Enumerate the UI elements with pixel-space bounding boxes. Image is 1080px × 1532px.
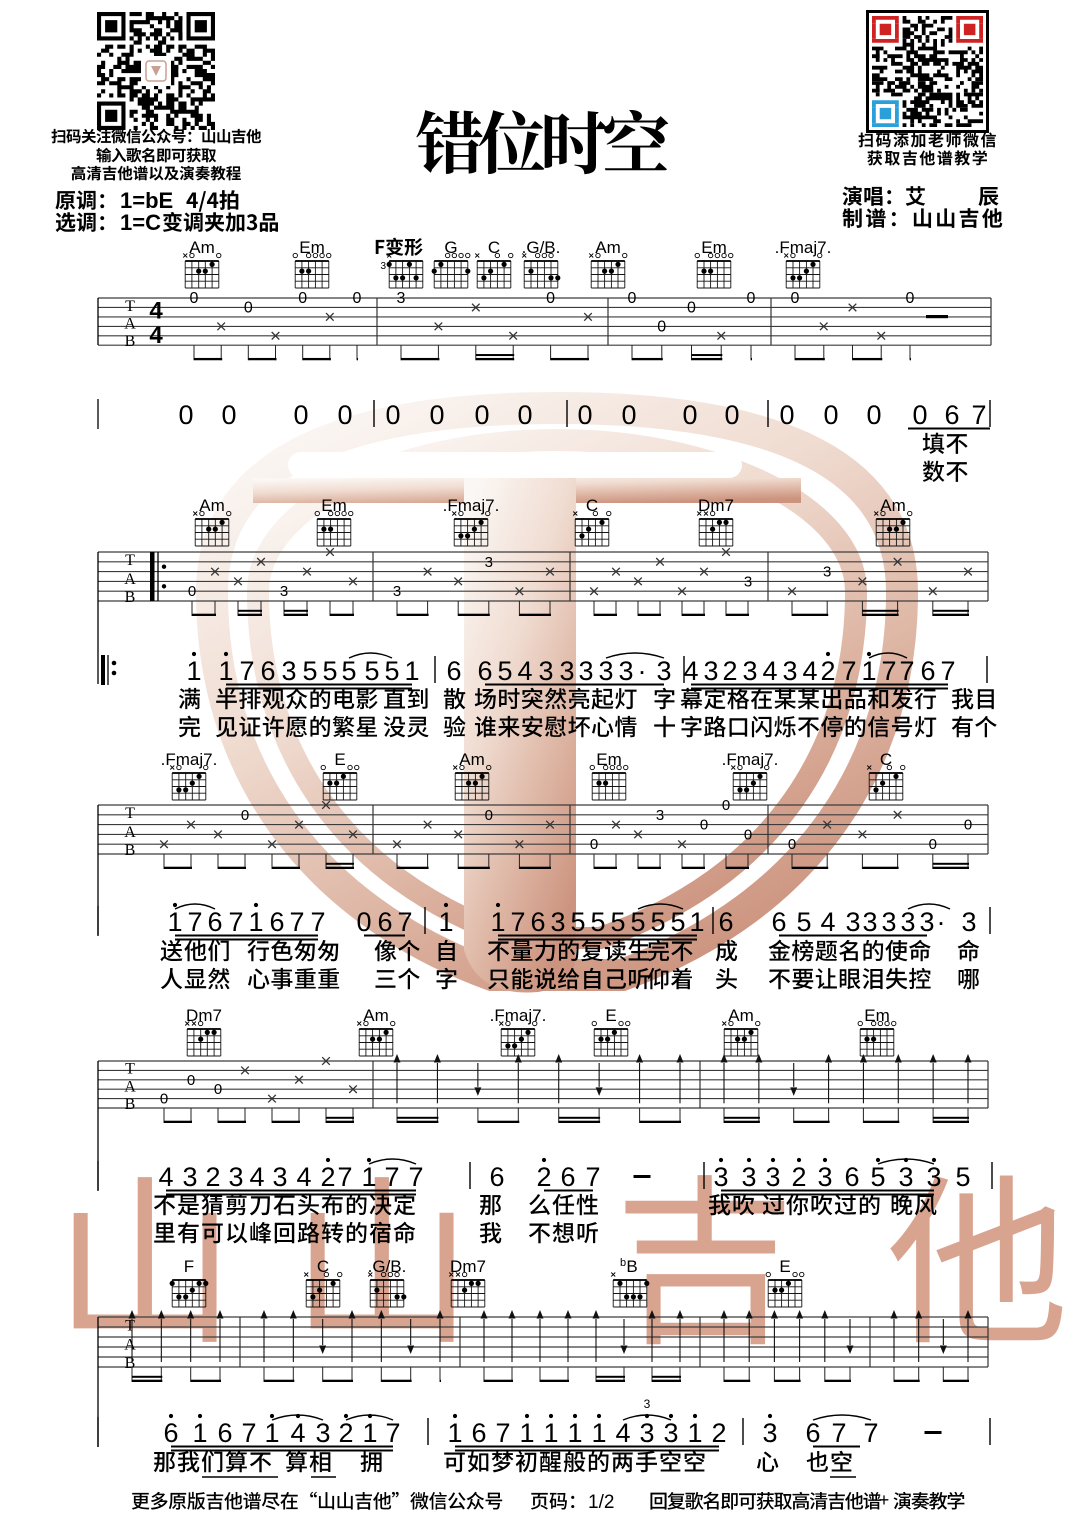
svg-text:3: 3 bbox=[485, 554, 493, 571]
svg-text:A: A bbox=[124, 824, 136, 841]
svg-text:B: B bbox=[125, 1096, 136, 1113]
svg-text:.Fmaj7.: .Fmaj7. bbox=[161, 750, 218, 769]
svg-text:T: T bbox=[125, 298, 135, 315]
svg-text:3: 3 bbox=[823, 564, 831, 581]
svg-text:+: + bbox=[879, 1490, 890, 1510]
svg-text:Am: Am bbox=[189, 238, 215, 257]
svg-text:0: 0 bbox=[628, 290, 637, 307]
svg-text:3: 3 bbox=[644, 1397, 651, 1411]
svg-text:.Fmaj7.: .Fmaj7. bbox=[490, 1006, 547, 1025]
svg-text:T: T bbox=[125, 1061, 135, 1078]
svg-text:4: 4 bbox=[149, 322, 163, 349]
svg-text:b: b bbox=[620, 1257, 626, 1269]
svg-text:3: 3 bbox=[280, 583, 288, 600]
svg-text:.G/B.: .G/B. bbox=[368, 1257, 407, 1276]
svg-text:0: 0 bbox=[546, 290, 555, 307]
svg-text:1=C: 1=C bbox=[120, 210, 161, 235]
svg-text:B: B bbox=[125, 333, 136, 350]
svg-text:C: C bbox=[586, 496, 598, 515]
svg-text:T: T bbox=[125, 1318, 135, 1335]
svg-text:43234342717762673332365335: 43234342717762673332365335 bbox=[158, 1162, 970, 1192]
svg-text:0: 0 bbox=[906, 290, 915, 307]
svg-text:0: 0 bbox=[485, 807, 493, 824]
svg-text:Am: Am bbox=[880, 496, 906, 515]
svg-text:0: 0 bbox=[788, 836, 796, 853]
svg-text:.G/B.: .G/B. bbox=[522, 238, 561, 257]
svg-text:A: A bbox=[124, 571, 136, 588]
svg-text:E: E bbox=[779, 1257, 790, 1276]
svg-text:4: 4 bbox=[149, 297, 163, 324]
svg-text:61671432171671111433123677: 61671432171671111433123677 bbox=[163, 1418, 878, 1448]
svg-text:3: 3 bbox=[397, 290, 406, 307]
svg-text:C: C bbox=[880, 750, 892, 769]
svg-text:.Fmaj7.: .Fmaj7. bbox=[722, 750, 779, 769]
svg-text:Am: Am bbox=[199, 496, 225, 515]
svg-text:3: 3 bbox=[656, 807, 664, 824]
svg-text:E: E bbox=[605, 1006, 616, 1025]
svg-text:176716770671176355555516654333: 17671677067117635555551665433333·3 bbox=[167, 907, 976, 937]
svg-text:Am: Am bbox=[363, 1006, 389, 1025]
svg-text:C: C bbox=[488, 238, 500, 257]
svg-text:0: 0 bbox=[190, 290, 199, 307]
svg-text:0: 0 bbox=[929, 836, 937, 853]
svg-text:Em: Em bbox=[701, 238, 727, 257]
svg-text:B: B bbox=[125, 589, 136, 606]
svg-text:T: T bbox=[125, 552, 135, 569]
svg-text:0: 0 bbox=[298, 290, 307, 307]
svg-text:0: 0 bbox=[214, 1081, 222, 1098]
svg-text:A: A bbox=[124, 1337, 136, 1354]
svg-text:0: 0 bbox=[244, 299, 253, 316]
svg-text:A: A bbox=[124, 1079, 136, 1096]
svg-text:0: 0 bbox=[700, 817, 708, 834]
svg-text:0: 0 bbox=[353, 290, 362, 307]
svg-text:0: 0 bbox=[188, 583, 196, 600]
svg-text:Am: Am bbox=[728, 1006, 754, 1025]
svg-text:Dm7: Dm7 bbox=[450, 1257, 486, 1276]
svg-text:3: 3 bbox=[393, 583, 401, 600]
svg-text:0: 0 bbox=[747, 290, 756, 307]
svg-text:C: C bbox=[317, 1257, 329, 1276]
svg-text:Em: Em bbox=[299, 238, 325, 257]
svg-text:0: 0 bbox=[657, 318, 666, 335]
svg-text:Em: Em bbox=[596, 750, 622, 769]
svg-text:Dm7: Dm7 bbox=[698, 496, 734, 515]
svg-text:0: 0 bbox=[744, 826, 752, 843]
svg-text:A: A bbox=[124, 316, 136, 333]
svg-text:0: 0 bbox=[590, 836, 598, 853]
svg-text:T: T bbox=[125, 805, 135, 822]
svg-text:F: F bbox=[184, 1257, 194, 1276]
svg-text:Dm7: Dm7 bbox=[186, 1006, 222, 1025]
svg-text:E: E bbox=[334, 750, 345, 769]
svg-text:G: G bbox=[444, 238, 457, 257]
svg-text:0: 0 bbox=[241, 807, 249, 824]
svg-text:Em: Em bbox=[321, 496, 347, 515]
svg-text:3: 3 bbox=[744, 573, 752, 590]
svg-text:Em: Em bbox=[864, 1006, 890, 1025]
svg-text:B: B bbox=[125, 842, 136, 859]
svg-text:Am: Am bbox=[459, 750, 485, 769]
svg-text:0: 0 bbox=[964, 817, 972, 834]
svg-text:0: 0 bbox=[722, 797, 730, 814]
svg-text:0: 0 bbox=[187, 1072, 195, 1089]
svg-text:0: 0 bbox=[687, 299, 696, 316]
svg-text:0: 0 bbox=[791, 290, 800, 307]
svg-text:.Fmaj7.: .Fmaj7. bbox=[443, 496, 500, 515]
svg-text:B: B bbox=[125, 1355, 136, 1372]
svg-text:0: 0 bbox=[160, 1091, 168, 1108]
svg-text:3: 3 bbox=[380, 261, 386, 272]
svg-text:Am: Am bbox=[595, 238, 621, 257]
svg-text:1/2: 1/2 bbox=[588, 1492, 614, 1513]
svg-text:B: B bbox=[626, 1257, 637, 1276]
svg-text:.Fmaj7.: .Fmaj7. bbox=[775, 238, 832, 257]
